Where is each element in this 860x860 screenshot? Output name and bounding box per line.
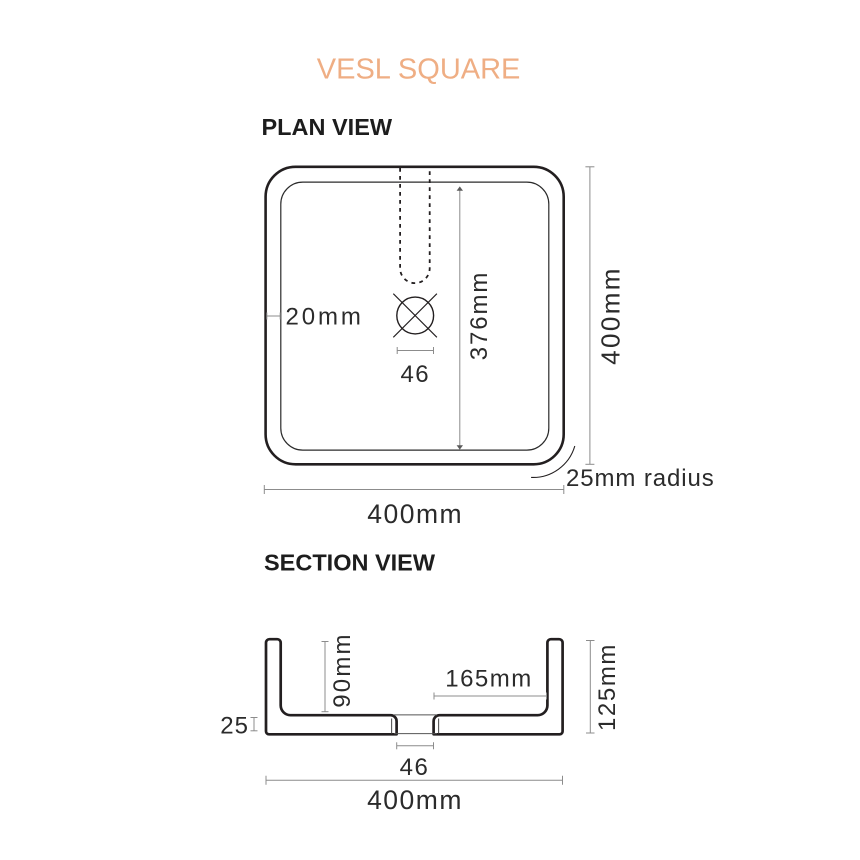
svg-text:VESL SQUARE: VESL SQUARE bbox=[317, 54, 521, 86]
svg-text:SECTION VIEW: SECTION VIEW bbox=[264, 550, 436, 576]
svg-text:400mm: 400mm bbox=[596, 266, 626, 365]
svg-text:46: 46 bbox=[400, 361, 430, 388]
svg-text:376mm: 376mm bbox=[466, 271, 493, 361]
svg-text:90mm: 90mm bbox=[329, 632, 356, 707]
svg-text:400mm: 400mm bbox=[367, 785, 463, 815]
svg-text:46: 46 bbox=[400, 754, 430, 781]
svg-text:165mm: 165mm bbox=[445, 666, 533, 693]
svg-text:PLAN VIEW: PLAN VIEW bbox=[262, 114, 393, 140]
svg-text:25: 25 bbox=[220, 713, 249, 740]
svg-text:400mm: 400mm bbox=[367, 499, 463, 529]
svg-text:125mm: 125mm bbox=[594, 643, 621, 731]
svg-text:25mm radius: 25mm radius bbox=[566, 465, 715, 492]
svg-text:20mm: 20mm bbox=[286, 304, 364, 331]
